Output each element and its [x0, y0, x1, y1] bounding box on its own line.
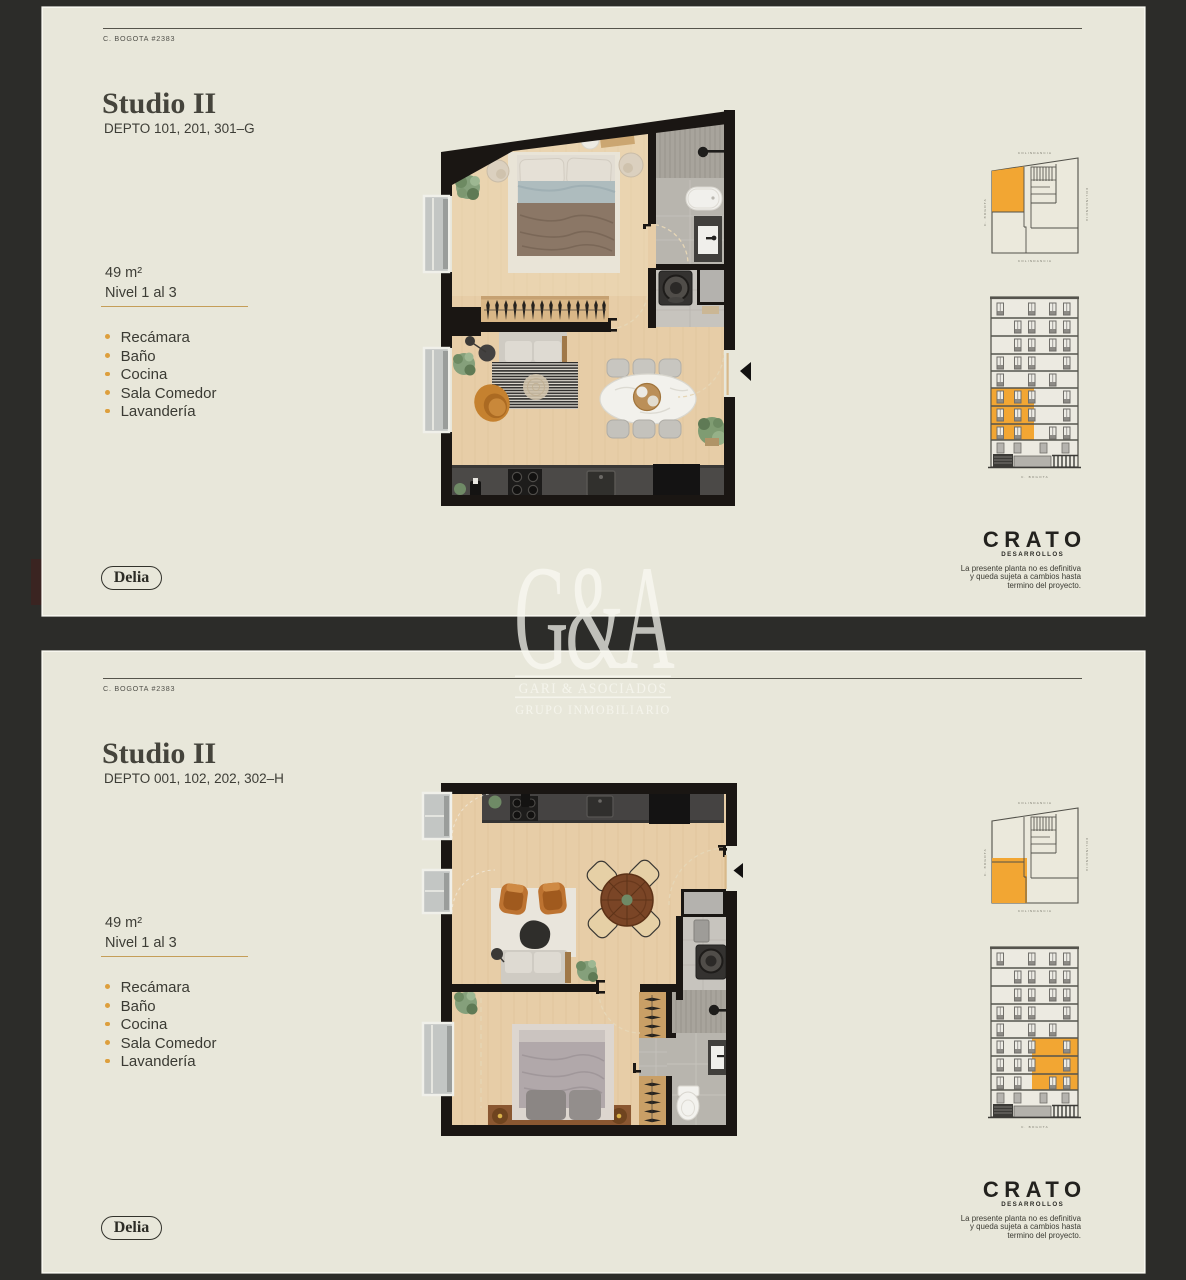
svg-text:GARI & ASOCIADOS: GARI & ASOCIADOS [519, 682, 668, 698]
svg-text:COLINDANCIA: COLINDANCIA [1085, 838, 1089, 872]
svg-text:COLINDANCIA: COLINDANCIA [1018, 909, 1052, 913]
svg-text:GRUPO INMOBILIARIO: GRUPO INMOBILIARIO [515, 703, 671, 717]
svg-text:C. BOGOTA: C. BOGOTA [1021, 1125, 1049, 1129]
svg-text:COLINDANCIA: COLINDANCIA [1018, 151, 1052, 155]
svg-text:C. BOGOTA: C. BOGOTA [983, 848, 987, 876]
svg-text:C. BOGOTA: C. BOGOTA [1021, 475, 1049, 479]
svg-text:COLINDANCIA: COLINDANCIA [1018, 259, 1052, 263]
svg-text:COLINDANCIA: COLINDANCIA [1085, 188, 1089, 222]
svg-text:C. BOGOTA: C. BOGOTA [983, 198, 987, 226]
svg-text:COLINDANCIA: COLINDANCIA [1018, 801, 1052, 805]
